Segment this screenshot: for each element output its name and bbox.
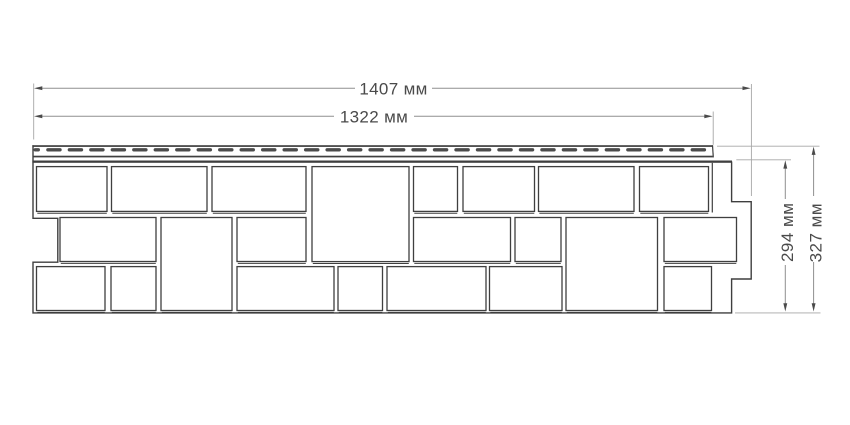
svg-text:1407 мм: 1407 мм: [359, 80, 427, 99]
svg-text:1322 мм: 1322 мм: [340, 108, 408, 127]
svg-text:294 мм: 294 мм: [778, 203, 797, 262]
svg-text:327 мм: 327 мм: [807, 203, 826, 262]
